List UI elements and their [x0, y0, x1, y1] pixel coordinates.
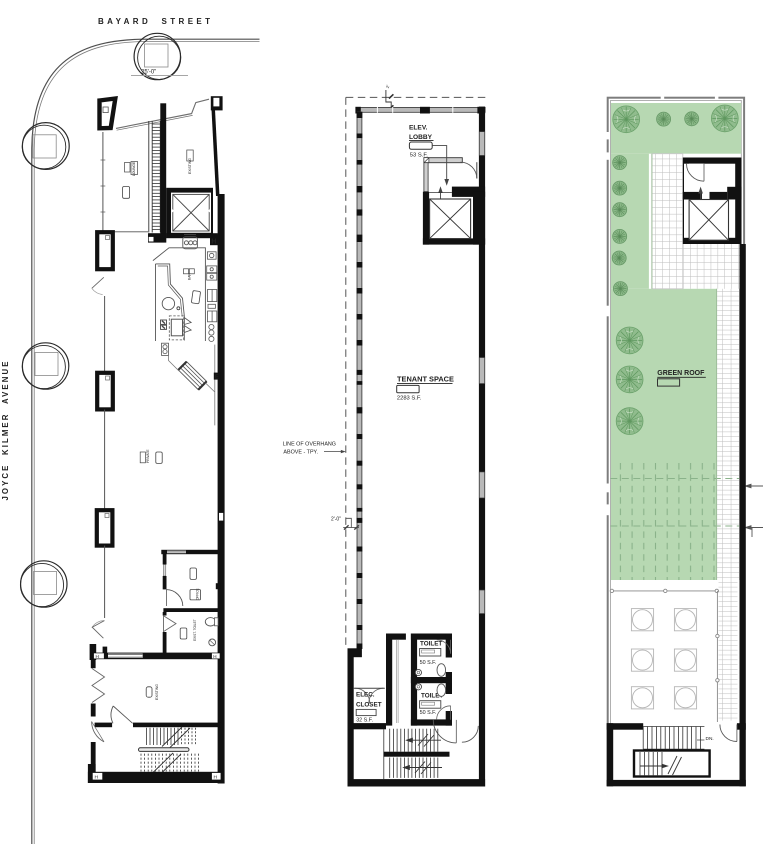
svg-text:25'-0": 25'-0": [141, 70, 156, 76]
svg-text:ELEC.: ELEC.: [356, 692, 375, 699]
svg-text:DN.: DN.: [706, 736, 714, 742]
svg-text:50 S.F.: 50 S.F.: [420, 710, 437, 716]
svg-text:2'-0": 2'-0": [331, 517, 341, 523]
svg-text:H: H: [95, 775, 99, 781]
svg-text:ABOVE - TPY.: ABOVE - TPY.: [283, 449, 318, 455]
svg-text:TOILET: TOILET: [420, 641, 442, 648]
svg-text:53 S.F.: 53 S.F.: [410, 152, 428, 158]
svg-text:EXIST. TOILET: EXIST. TOILET: [193, 619, 197, 641]
svg-text:JOYCE KILMER AVENUE: JOYCE KILMER AVENUE: [1, 360, 10, 501]
svg-text:H: H: [96, 654, 99, 659]
svg-text:TENANT SPACE: TENANT SPACE: [397, 375, 454, 384]
svg-text:2283 S.F.: 2283 S.F.: [397, 396, 422, 402]
svg-text:EXISTING: EXISTING: [155, 684, 159, 700]
svg-text:STREET: STREET: [162, 17, 214, 26]
svg-text:PRIVATE: PRIVATE: [146, 449, 150, 463]
svg-text:LINE OF OVERHANG: LINE OF OVERHANG: [283, 442, 336, 448]
svg-text:H: H: [211, 238, 216, 245]
svg-text:E: E: [215, 375, 219, 381]
svg-text:GREEN ROOF: GREEN ROOF: [657, 370, 705, 377]
svg-text:50 S.F.: 50 S.F.: [420, 660, 437, 666]
svg-text:H: H: [213, 654, 216, 659]
svg-text:BAYARD: BAYARD: [98, 17, 151, 26]
svg-text:CLOSET: CLOSET: [356, 702, 382, 709]
svg-text:ELEV.: ELEV.: [409, 124, 428, 131]
svg-text:OFFICE: OFFICE: [196, 588, 200, 600]
svg-text:LOUNGE: LOUNGE: [132, 161, 136, 176]
svg-text:BAR: BAR: [188, 273, 192, 280]
svg-text:LOBBY: LOBBY: [409, 134, 433, 141]
svg-text:EXISTING: EXISTING: [188, 158, 192, 174]
svg-text:H: H: [214, 775, 218, 781]
svg-text:32 S.F.: 32 S.F.: [356, 718, 373, 724]
